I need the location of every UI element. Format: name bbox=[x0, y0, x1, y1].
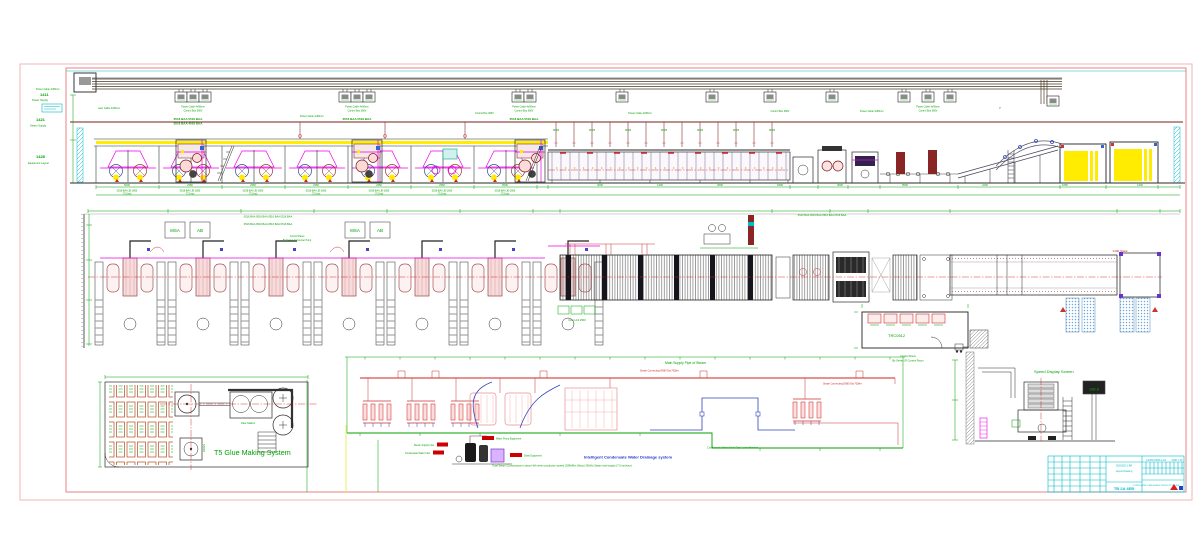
glue-making-room: Glue Station DRAIN T5 Glue Making System bbox=[98, 375, 378, 492]
svg-text:Control Box 380V: Control Box 380V bbox=[919, 110, 938, 113]
svg-text:0516 BAA 0516 BAA 0516 BAA: 0516 BAA 0516 BAA 0516 BAA 0516 BAA bbox=[244, 222, 293, 226]
svg-text:Water Pump Equipment: Water Pump Equipment bbox=[496, 438, 522, 441]
speed-display-label: Speed Display Screen bbox=[1034, 369, 1074, 374]
svg-text:Control Box 380V: Control Box 380V bbox=[184, 110, 203, 113]
svg-text:Steam Connecting DN80 Dia 700t: Steam Connecting DN80 Dia 700t/hr bbox=[640, 370, 679, 373]
svg-text:(7.5 kw): (7.5 kw) bbox=[123, 193, 132, 196]
svg-text:3000: 3000 bbox=[837, 183, 843, 187]
svg-text:DN25: DN25 bbox=[661, 129, 668, 132]
cad-drawing-canvas: Power Cable 4x95mm 1411 Power Supply 142… bbox=[0, 0, 1200, 557]
svg-text:Power Cable 4x95mm: Power Cable 4x95mm bbox=[181, 106, 205, 109]
svg-text:1200: 1200 bbox=[1137, 183, 1143, 187]
conveyor-plan: 1400 Stack bbox=[950, 249, 1161, 298]
svg-text:Power Cable 4x95mm: Power Cable 4x95mm bbox=[300, 115, 324, 118]
glue-station-label: Glue Station bbox=[241, 421, 256, 425]
cable-tray: Power Cable 4x95mm Control Box 380V Powe… bbox=[74, 73, 1062, 126]
svg-text:Drain Equipment: Drain Equipment bbox=[524, 455, 542, 458]
plan-view: MSA AB MSA AB 0516 BAA 0516 BAA 0516 BAA… bbox=[82, 209, 1180, 363]
drawing-date: 2008-7-19 bbox=[1172, 459, 1184, 462]
svg-text:Power Cable 4x95mm: Power Cable 4x95mm bbox=[860, 110, 884, 113]
svg-text:1800: 1800 bbox=[777, 183, 783, 187]
control-room-code: TRC0512 bbox=[888, 333, 906, 338]
svg-text:0516 BAA 0516 BAA: 0516 BAA 0516 BAA bbox=[343, 117, 373, 121]
cad-drawing: Power Cable 4x95mm 1411 Power Supply 142… bbox=[0, 0, 1200, 557]
elevation-dimensions: 5200 2350 2350 2350 2350 2350 6500 2000 … bbox=[96, 183, 1180, 196]
svg-text:1400: 1400 bbox=[657, 183, 663, 187]
svg-text:0516 BAA 0516 BAA: 0516 BAA 0516 BAA bbox=[510, 117, 540, 121]
drainage-title: Intelligent Condensate Water Drainage sy… bbox=[584, 455, 673, 460]
svg-text:DN25: DN25 bbox=[589, 129, 596, 132]
svg-text:5500: 5500 bbox=[902, 183, 908, 187]
svg-text:Steam Supply Inlet: Steam Supply Inlet bbox=[414, 444, 434, 447]
svg-text:(7.5 kw): (7.5 kw) bbox=[375, 193, 384, 196]
double-facer-elevation bbox=[548, 150, 790, 183]
margin-code-1: 1411 bbox=[40, 92, 49, 97]
svg-text:AB: AB bbox=[377, 228, 383, 233]
svg-text:2350: 2350 bbox=[187, 183, 193, 187]
pump-cluster-plan bbox=[700, 215, 758, 248]
svg-text:5200: 5200 bbox=[124, 183, 130, 187]
drainage-note: Total Steam Consumption is about 4t/h wh… bbox=[492, 464, 632, 468]
margin-label-2: Steam Supply bbox=[30, 124, 47, 128]
svg-text:DN25: DN25 bbox=[697, 129, 704, 132]
svg-text:Glue Unit 2500: Glue Unit 2500 bbox=[568, 318, 586, 322]
svg-text:Control Box 380V: Control Box 380V bbox=[771, 110, 790, 113]
svg-text:Control Box 380V: Control Box 380V bbox=[515, 110, 534, 113]
drain-label: DRAIN bbox=[202, 444, 206, 452]
svg-text:2350: 2350 bbox=[250, 183, 256, 187]
svg-text:Control Room: Control Room bbox=[900, 354, 916, 358]
finishing-elevation bbox=[793, 140, 1062, 184]
svg-text:0516 BAA 0516 BAA 0516 BAA: 0516 BAA 0516 BAA 0516 BAA 0516 BAA bbox=[244, 215, 293, 219]
svg-text:2350: 2350 bbox=[376, 183, 382, 187]
stack-label: 1400 Stack bbox=[1112, 249, 1128, 253]
stackers-elevation bbox=[1060, 127, 1180, 183]
margin-code-2: 1421 bbox=[36, 117, 46, 122]
svg-text:By Series Of Control Room: By Series Of Control Room bbox=[892, 359, 923, 363]
svg-text:Control Box 380V: Control Box 380V bbox=[348, 110, 367, 113]
svg-text:(7.5 kw): (7.5 kw) bbox=[186, 193, 195, 196]
svg-text:(7.5 kw): (7.5 kw) bbox=[249, 193, 258, 196]
condensate-recovery-unit: Steam Supply Inlet Condensate Water Inle… bbox=[405, 436, 542, 464]
speed-value: 188.8 bbox=[1089, 387, 1100, 392]
margin-note: Power Cable 4x95mm bbox=[36, 88, 60, 91]
svg-text:2000: 2000 bbox=[597, 183, 603, 187]
stacker-pallets-plan bbox=[1060, 298, 1158, 332]
condensate-label: Condensate Water Main Pipe Lower Bracket bbox=[707, 446, 758, 450]
svg-text:Condensate Water Inlet: Condensate Water Inlet bbox=[405, 452, 430, 455]
svg-text:2350: 2350 bbox=[313, 183, 319, 187]
glue-room-title: T5 Glue Making System bbox=[214, 448, 291, 457]
svg-text:2500/250-1.8M: 2500/250-1.8M bbox=[1116, 465, 1132, 468]
steam-main-label: Main Supply Pipe of Steam bbox=[665, 361, 706, 365]
svg-text:Control Box 380V: Control Box 380V bbox=[475, 112, 494, 115]
svg-text:0516 BAA 0516 BAA 0516 BAA: 0516 BAA 0516 BAA 0516 BAA 0516 BAA bbox=[798, 213, 847, 217]
svg-text:MSA: MSA bbox=[170, 228, 180, 233]
svg-text:AB: AB bbox=[197, 228, 203, 233]
svg-text:DN25: DN25 bbox=[769, 129, 776, 132]
drawing-number: A1250-2500-2-01 bbox=[1146, 458, 1167, 462]
svg-text:Power Cable 4x95mm: Power Cable 4x95mm bbox=[345, 106, 369, 109]
svg-text:2200: 2200 bbox=[982, 183, 988, 187]
svg-text:(7.5 kw): (7.5 kw) bbox=[438, 193, 447, 196]
svg-text:Layout Drawing: Layout Drawing bbox=[1116, 470, 1133, 473]
steam-schematic: Main Supply Pipe of Steam Steam Connecti… bbox=[345, 357, 905, 468]
corrugator-plan bbox=[548, 244, 772, 300]
svg-text:Steam Connecting DN80 Dia 700t: Steam Connecting DN80 Dia 700t/hr bbox=[823, 383, 862, 386]
svg-text:DN25: DN25 bbox=[625, 129, 632, 132]
svg-text:(7.5 kw): (7.5 kw) bbox=[501, 193, 510, 196]
margin-label-3: Equipment Layout bbox=[28, 161, 49, 165]
model-code: TB 2A 4EB bbox=[1114, 486, 1134, 491]
margin-labels: Power Cable 4x95mm 1411 Power Supply 142… bbox=[28, 88, 62, 165]
svg-text:Power Cable 4x95mm: Power Cable 4x95mm bbox=[916, 106, 940, 109]
title-block: A1250-2500-2-01 2008-7-19 2500/250-1.8M … bbox=[1048, 456, 1184, 492]
speed-display-area: Speed Display Screen 188.8 bbox=[952, 352, 1115, 444]
svg-text:2500: 2500 bbox=[717, 183, 723, 187]
svg-text:2350: 2350 bbox=[439, 183, 445, 187]
svg-text:0516 BAA 0516 BAA: 0516 BAA 0516 BAA bbox=[174, 117, 204, 121]
margin-code-3: 1428 bbox=[36, 154, 46, 159]
svg-text:1650: 1650 bbox=[1062, 183, 1068, 187]
svg-text:(7.5 kw): (7.5 kw) bbox=[312, 193, 321, 196]
svg-text:DN25: DN25 bbox=[733, 129, 740, 132]
svg-text:Power Cable 4x95mm: Power Cable 4x95mm bbox=[628, 112, 652, 115]
svg-text:6500: 6500 bbox=[502, 183, 508, 187]
svg-text:By Series In Counter Point: By Series In Counter Point bbox=[283, 239, 312, 242]
svg-text:Power Cable 4x95mm: Power Cable 4x95mm bbox=[512, 106, 536, 109]
glue-unit-plan: Glue Unit 2500 bbox=[558, 306, 595, 322]
svg-text:DN25: DN25 bbox=[553, 129, 560, 132]
margin-label-1: Power Supply bbox=[32, 98, 49, 102]
svg-text:MSA: MSA bbox=[350, 228, 360, 233]
elevation-view: Power Cable 4x95mm Control Box 380V Powe… bbox=[70, 95, 1185, 183]
svg-text:Control Panel: Control Panel bbox=[290, 235, 305, 238]
